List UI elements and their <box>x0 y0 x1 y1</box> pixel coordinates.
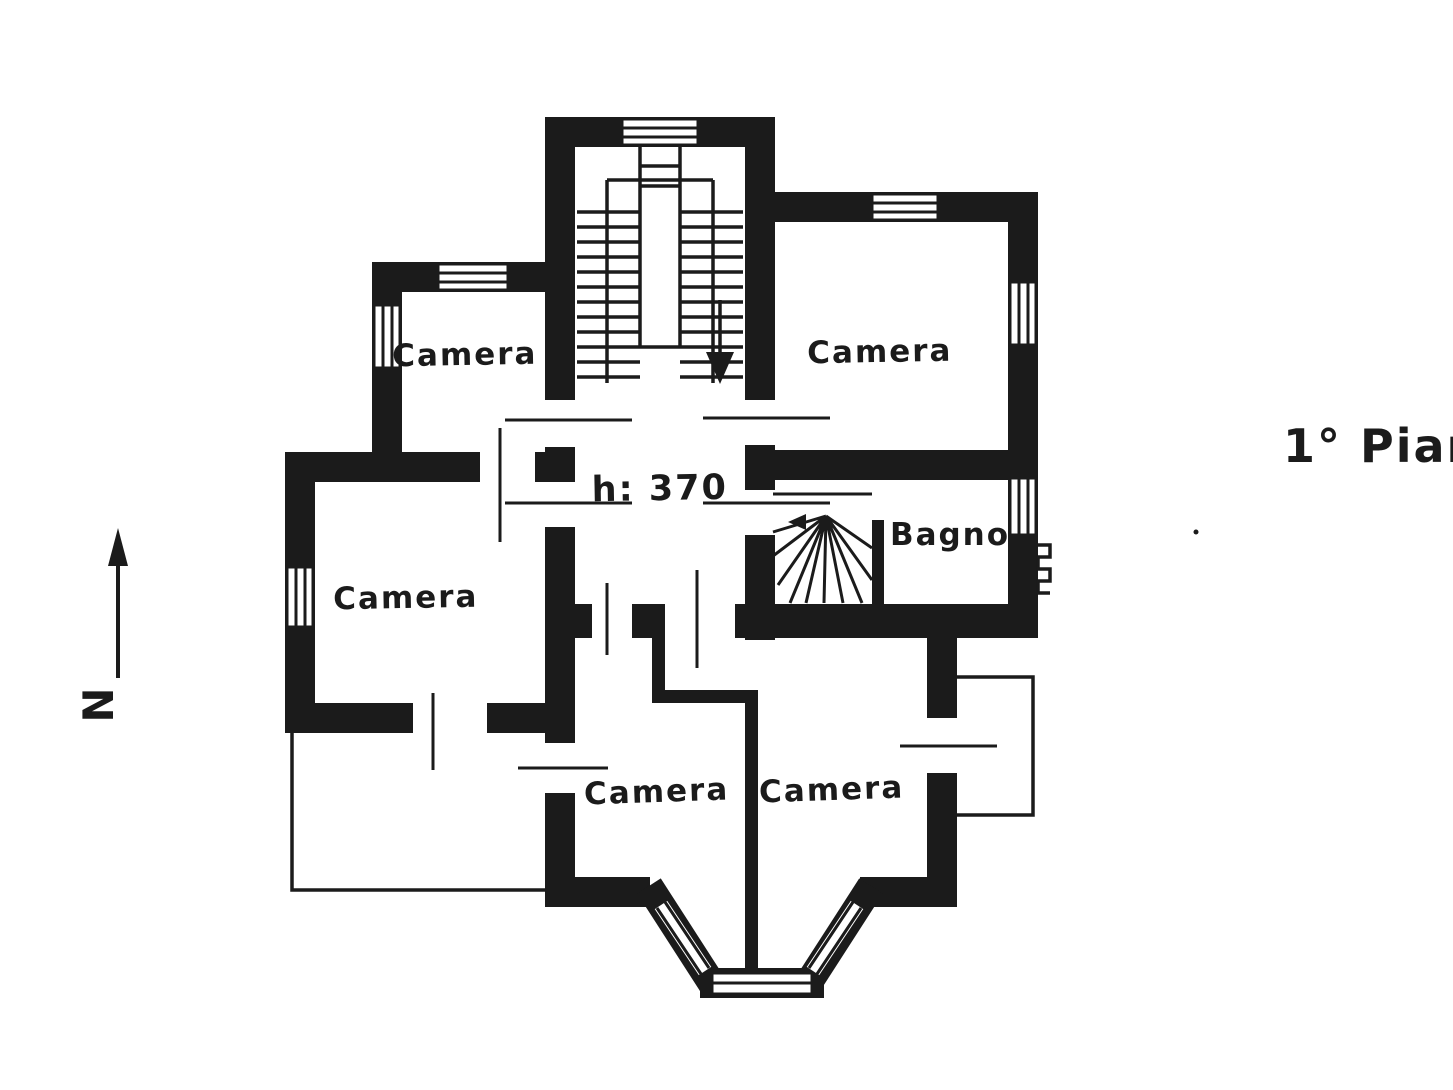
room-label-camera-mid-left: Camera <box>333 579 479 618</box>
stair-direction-arrow <box>706 352 734 384</box>
wall-divider-v2 <box>745 690 758 982</box>
room-label-camera-top-left: Camera <box>392 336 538 375</box>
wall-bagno-spiral-divider <box>872 520 884 604</box>
window-topright-top <box>872 194 938 220</box>
window-stairwell-top <box>622 119 698 145</box>
wall-bottomleft-bottom <box>545 877 650 907</box>
window-bagno-right <box>1010 478 1036 535</box>
wall-hall-left <box>545 117 575 640</box>
room-label-bagno: Bagno <box>890 517 1010 553</box>
floor-plan-page: N Camera Camera Camera Camera Camera Bag… <box>0 0 1453 1090</box>
north-arrow-head <box>108 528 128 566</box>
terrace-outline <box>292 733 547 890</box>
door-hall-to-spiral <box>745 490 775 535</box>
floor-plan-drawing: N Camera Camera Camera Camera Camera Bag… <box>0 0 1453 1090</box>
main-staircase <box>577 147 743 384</box>
windows-layer <box>287 119 1036 994</box>
stray-ink-dot <box>1194 530 1199 535</box>
stair-balustrade <box>640 147 680 347</box>
north-arrow: N <box>74 528 128 723</box>
window-topright-right <box>1010 282 1036 345</box>
door-hall-to-bottomleft <box>592 604 632 638</box>
door-midleft-to-terrace <box>413 703 487 733</box>
room-label-camera-bottom-right: Camera <box>758 769 904 810</box>
room-label-camera-top-right: Camera <box>807 333 953 372</box>
wall-row-top <box>745 450 1038 480</box>
labels-layer: Camera Camera Camera Camera Camera Bagno… <box>333 333 1453 813</box>
north-label: N <box>74 687 123 722</box>
window-bay-bottom <box>712 973 812 994</box>
spiral-staircase <box>773 494 872 603</box>
room-label-camera-bottom-left: Camera <box>583 771 729 812</box>
radiator-mark <box>1038 545 1050 593</box>
window-topleft-top <box>438 264 508 290</box>
spiral-winders <box>773 516 872 603</box>
hall-height-note: h: 370 <box>591 468 728 510</box>
window-midleft-left <box>287 567 313 627</box>
floor-title: 1° Pian <box>1283 419 1453 473</box>
door-topleft-to-midleft <box>480 452 535 482</box>
wall-divider-h1 <box>652 690 757 703</box>
door-hall-to-bottomright <box>665 604 735 638</box>
door-hall-to-topright <box>745 400 775 445</box>
door-hall-to-topleft <box>545 400 575 447</box>
walls-layer <box>285 117 1038 998</box>
